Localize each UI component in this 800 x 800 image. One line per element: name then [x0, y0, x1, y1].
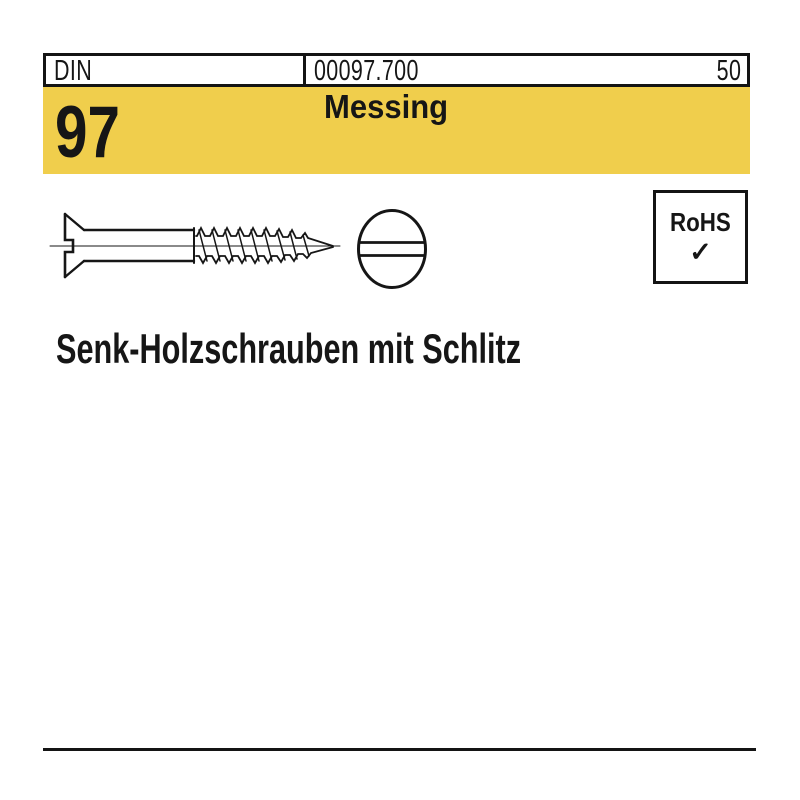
product-drawing	[0, 0, 800, 800]
rohs-check-icon: ✓	[689, 239, 712, 266]
page-title: Senk-Holzschrauben mit Schlitz	[56, 328, 521, 370]
catalog-page: DIN 00097.700 50 97 Messing	[0, 0, 800, 800]
screw-head-cone-top	[65, 214, 84, 230]
rohs-badge: RoHS ✓	[653, 190, 748, 284]
head-outline	[359, 211, 426, 288]
screw-head-view-drawing	[359, 211, 426, 288]
rohs-label: RoHS	[670, 209, 731, 235]
screw-side-view-drawing	[50, 214, 340, 277]
footer-divider	[43, 748, 756, 751]
screw-head-cone-bottom	[65, 261, 84, 277]
